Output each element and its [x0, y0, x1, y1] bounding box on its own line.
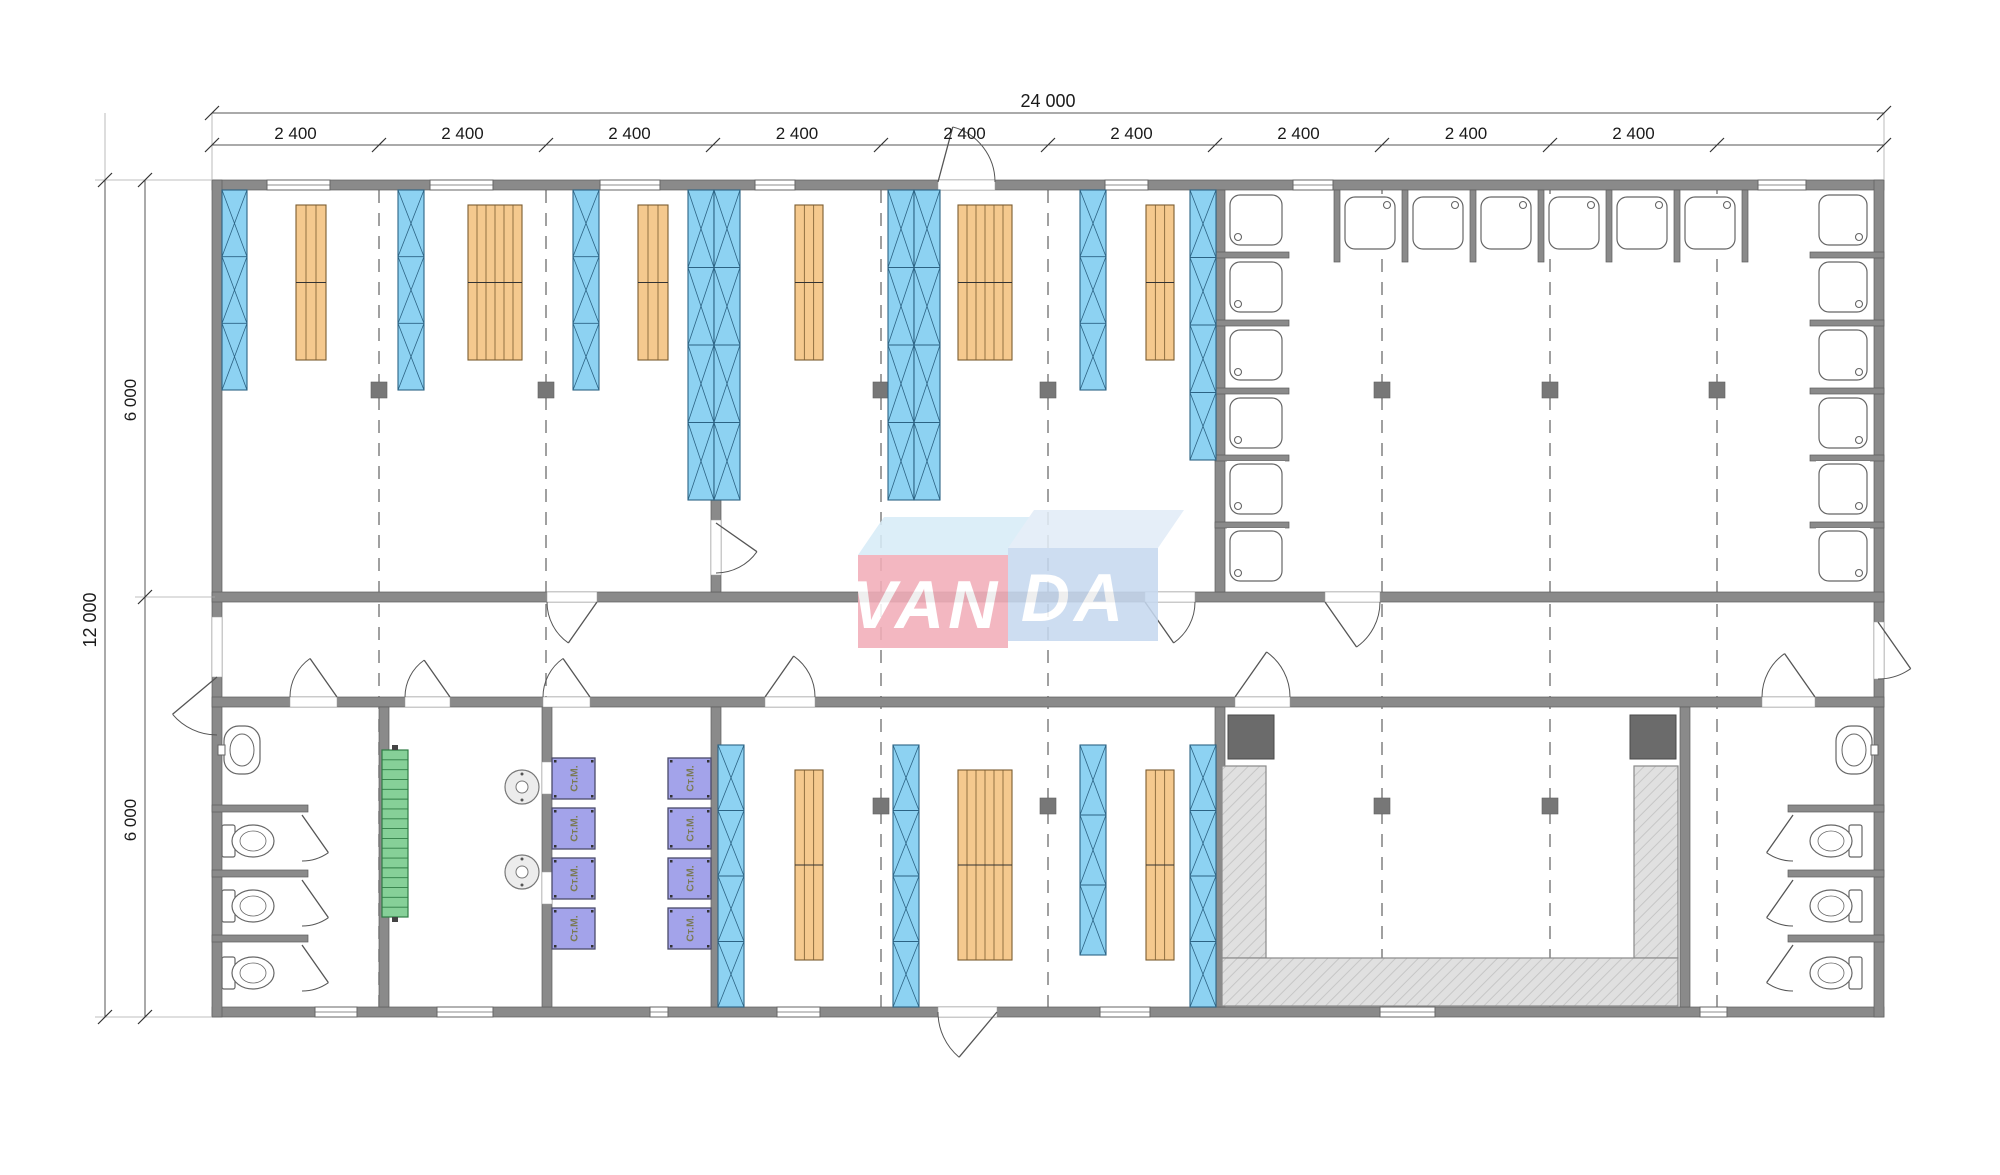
door-opening [1762, 697, 1815, 707]
washing-machine-label: Ст.М. [685, 815, 697, 841]
door-leaf [310, 658, 337, 697]
stair-cap [392, 745, 398, 750]
shower-drain [1235, 301, 1242, 308]
shower-drain [1856, 369, 1863, 376]
washer-foot [591, 945, 594, 948]
door-opening [547, 592, 597, 602]
shower-drain [1724, 202, 1731, 209]
logo-bevel-right [1008, 510, 1184, 548]
door-leaf [302, 880, 328, 918]
washer-foot [707, 860, 710, 863]
door-leaf [568, 602, 597, 643]
wall [1215, 522, 1289, 528]
shower-drain [1235, 369, 1242, 376]
bench [1222, 766, 1266, 958]
shower-drain [1856, 301, 1863, 308]
shower-drain [1235, 234, 1242, 241]
shower-drain [1235, 437, 1242, 444]
sink-tap [218, 745, 225, 755]
washing-machine-label: Ст.М. [569, 915, 581, 941]
door-opening [938, 180, 995, 190]
door-opening [1874, 622, 1884, 679]
shower-drain [1856, 437, 1863, 444]
toilet-bowl [1810, 957, 1852, 989]
water-heater-dot [521, 884, 524, 887]
wall [1810, 320, 1884, 326]
logo-text-da: DA [1021, 560, 1127, 636]
door-swing-arc [1767, 918, 1793, 926]
module-marker [1374, 382, 1390, 398]
wall [1674, 190, 1680, 262]
wall [1215, 455, 1289, 461]
washing-machine-label: Ст.М. [685, 765, 697, 791]
dim-label-module: 2 400 [943, 124, 986, 143]
toilet-bowl [1810, 825, 1852, 857]
shower-drain [1856, 570, 1863, 577]
water-heater-dot [521, 773, 524, 776]
washer-foot [554, 795, 557, 798]
door-opening [212, 617, 222, 677]
washer-foot [591, 895, 594, 898]
module-marker [371, 382, 387, 398]
washer-foot [707, 910, 710, 913]
washing-machine-label: Ст.М. [685, 915, 697, 941]
door-swing-arc [1357, 602, 1380, 647]
washer-foot [670, 810, 673, 813]
shower-drain [1588, 202, 1595, 209]
wall [212, 697, 1884, 707]
door-opening [542, 872, 552, 904]
module-marker [1040, 798, 1056, 814]
module-marker [873, 382, 889, 398]
dim-label-module: 2 400 [1110, 124, 1153, 143]
door-opening [405, 697, 450, 707]
toilet-bowl [232, 957, 274, 989]
wall [1788, 870, 1884, 877]
washer-foot [591, 810, 594, 813]
door-opening [765, 697, 815, 707]
washer-foot [670, 845, 673, 848]
logo-text-van: VAN [851, 567, 1002, 643]
module-marker [1542, 798, 1558, 814]
wall [212, 870, 308, 877]
wall [1402, 190, 1408, 262]
door-opening [1325, 592, 1380, 602]
door-swing-arc [290, 658, 310, 697]
dim-label-overall-height: 12 000 [80, 592, 100, 647]
module-marker [1040, 382, 1056, 398]
toilet-bowl [1810, 890, 1852, 922]
washing-machine-label: Ст.М. [569, 865, 581, 891]
door-opening [542, 762, 552, 794]
sink [224, 726, 260, 774]
dim-label-overall-width: 24 000 [1020, 91, 1075, 111]
floor-plan-drawing: Ст.М.Ст.М.Ст.М.Ст.М.Ст.М.Ст.М.Ст.М.Ст.М.… [0, 0, 2000, 1175]
wall [542, 707, 552, 1007]
washer-foot [591, 795, 594, 798]
door-leaf [173, 677, 217, 714]
washer-foot [707, 845, 710, 848]
wall [1810, 252, 1884, 258]
shower-drain [1656, 202, 1663, 209]
wall [1788, 935, 1884, 942]
shower-drain [1452, 202, 1459, 209]
door-swing-arc [1174, 602, 1195, 643]
sink [1836, 726, 1872, 774]
door-leaf [716, 523, 757, 552]
dim-label-module: 2 400 [441, 124, 484, 143]
door-swing-arc [1767, 983, 1793, 991]
door-leaf [1767, 815, 1793, 853]
equipment-box [1630, 715, 1676, 759]
washer-foot [707, 895, 710, 898]
door-opening [711, 520, 721, 575]
stair-cap [392, 917, 398, 922]
washer-foot [554, 810, 557, 813]
door-swing-arc [1767, 853, 1793, 861]
washing-machine-label: Ст.М. [685, 865, 697, 891]
dim-label-module: 2 400 [608, 124, 651, 143]
door-swing-arc [547, 602, 568, 643]
door-swing-arc [405, 660, 424, 697]
bench [1634, 766, 1678, 958]
door-swing-arc [173, 714, 217, 735]
wall [1742, 190, 1748, 262]
washer-foot [554, 910, 557, 913]
shower-drain [1856, 234, 1863, 241]
door-leaf [1785, 654, 1815, 697]
washer-foot [554, 845, 557, 848]
wall [212, 805, 308, 812]
washer-foot [591, 860, 594, 863]
washing-machine-label: Ст.М. [569, 815, 581, 841]
wall [212, 935, 308, 942]
wall [1810, 522, 1884, 528]
dim-label-module: 2 400 [274, 124, 317, 143]
module-marker [1709, 382, 1725, 398]
floor-plan: Ст.М.Ст.М.Ст.М.Ст.М.Ст.М.Ст.М.Ст.М.Ст.М.… [0, 0, 2000, 1175]
wall [1215, 320, 1289, 326]
door-leaf [1325, 602, 1357, 647]
wall [1680, 707, 1690, 1007]
toilet-bowl [232, 890, 274, 922]
water-heater-cap [516, 866, 528, 878]
washer-foot [591, 845, 594, 848]
door-swing-arc [1267, 652, 1290, 697]
door-leaf [563, 658, 590, 697]
shower-drain [1856, 503, 1863, 510]
door-opening [290, 697, 337, 707]
wall [1538, 190, 1544, 262]
wall [1788, 805, 1884, 812]
sink-tap [1871, 745, 1878, 755]
washer-foot [670, 895, 673, 898]
door-swing-arc [938, 1012, 959, 1057]
door-swing-arc [1762, 654, 1785, 697]
washer-foot [670, 760, 673, 763]
vanda-logo: VANDA [851, 510, 1184, 648]
wall [1215, 252, 1289, 258]
wall [1215, 388, 1289, 394]
dim-label-half: 6 000 [121, 799, 140, 842]
toilet-bowl [232, 825, 274, 857]
door-opening [1235, 697, 1290, 707]
washer-foot [670, 910, 673, 913]
bench [1222, 958, 1678, 1006]
dim-label-half: 6 000 [121, 379, 140, 422]
door-swing-arc [794, 656, 815, 697]
washer-foot [554, 760, 557, 763]
dim-label-module: 2 400 [1445, 124, 1488, 143]
module-marker [538, 382, 554, 398]
door-leaf [959, 1012, 997, 1057]
dim-label-module: 2 400 [1277, 124, 1320, 143]
logo-bevel-left [858, 517, 1034, 555]
module-marker [1374, 798, 1390, 814]
washer-foot [591, 760, 594, 763]
shower-drain [1520, 202, 1527, 209]
door-leaf [302, 815, 328, 853]
washer-foot [707, 760, 710, 763]
door-leaf [765, 656, 794, 697]
dim-label-module: 2 400 [776, 124, 819, 143]
door-leaf [1767, 880, 1793, 918]
door-leaf [302, 945, 328, 983]
water-heater-cap [516, 781, 528, 793]
door-swing-arc [716, 552, 757, 573]
water-heater-dot [521, 799, 524, 802]
washer-foot [554, 860, 557, 863]
wall [1470, 190, 1476, 262]
washer-foot [591, 910, 594, 913]
door-leaf [1767, 945, 1793, 983]
door-swing-arc [302, 918, 328, 926]
washer-foot [554, 945, 557, 948]
shower-drain [1384, 202, 1391, 209]
dim-label-module: 2 400 [1612, 124, 1655, 143]
shower-drain [1235, 570, 1242, 577]
washing-machine-label: Ст.М. [569, 765, 581, 791]
wall [1810, 455, 1884, 461]
washer-foot [707, 795, 710, 798]
wall [1810, 388, 1884, 394]
wall [1606, 190, 1612, 262]
door-leaf [1235, 652, 1267, 697]
shower-drain [1235, 503, 1242, 510]
washer-foot [670, 860, 673, 863]
module-marker [873, 798, 889, 814]
washer-foot [670, 945, 673, 948]
module-marker [1542, 382, 1558, 398]
door-swing-arc [302, 853, 328, 861]
door-swing-arc [302, 983, 328, 991]
washer-foot [554, 895, 557, 898]
washer-foot [707, 810, 710, 813]
door-leaf [424, 660, 450, 697]
stairs [382, 750, 408, 917]
wall [1334, 190, 1340, 262]
equipment-box [1228, 715, 1274, 759]
door-opening [543, 697, 590, 707]
door-opening [938, 1007, 997, 1017]
washer-foot [707, 945, 710, 948]
water-heater-dot [521, 858, 524, 861]
washer-foot [670, 795, 673, 798]
